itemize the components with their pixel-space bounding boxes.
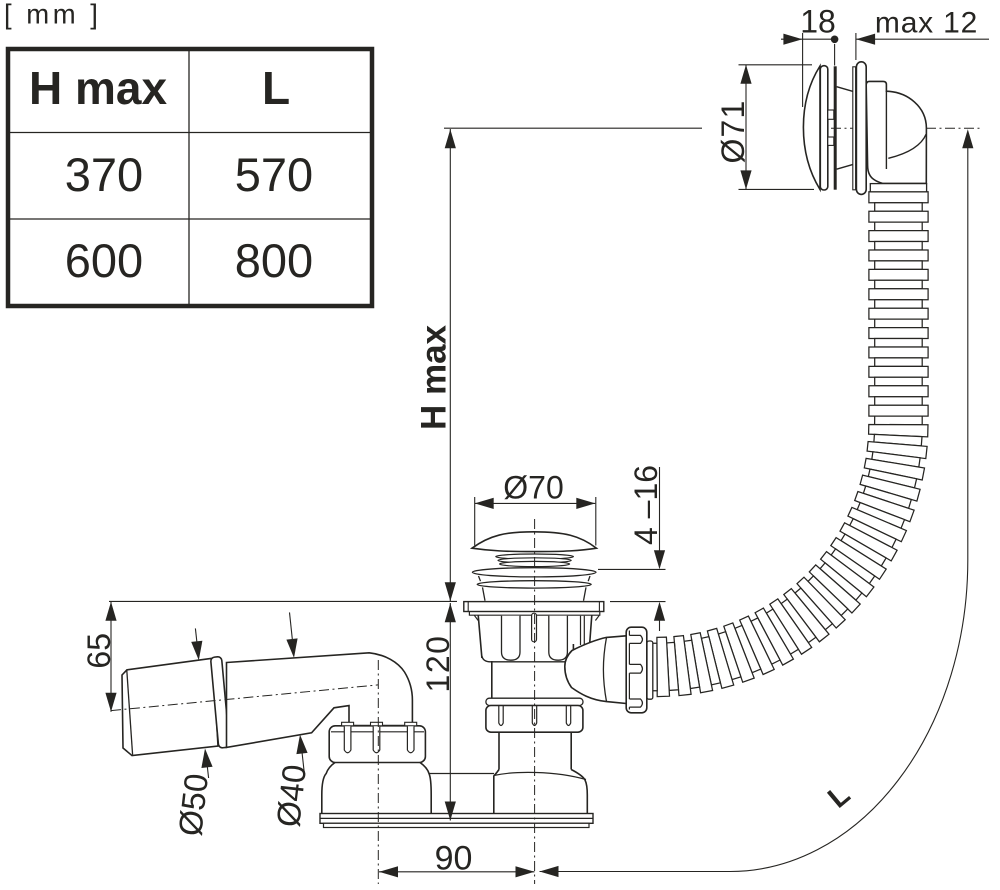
svg-text:800: 800	[235, 234, 313, 287]
svg-text:L: L	[822, 779, 856, 815]
svg-text:Ø50: Ø50	[171, 772, 215, 838]
svg-text:Ø71: Ø71	[715, 99, 751, 163]
svg-text:18: 18	[800, 4, 836, 40]
svg-text:Ø70: Ø70	[503, 470, 563, 506]
svg-text:120: 120	[420, 635, 456, 693]
svg-text:H max: H max	[415, 324, 454, 430]
svg-text:L: L	[262, 62, 290, 114]
svg-text:600: 600	[65, 234, 143, 287]
svg-text:[ mm ]: [ mm ]	[4, 0, 101, 30]
svg-text:570: 570	[235, 148, 313, 201]
svg-text:max 12: max 12	[875, 7, 978, 40]
svg-text:65: 65	[81, 633, 117, 669]
svg-text:90: 90	[435, 840, 473, 878]
svg-text:Ø40: Ø40	[269, 763, 313, 829]
svg-text:H max: H max	[29, 62, 167, 114]
svg-text:4 –16: 4 –16	[628, 465, 664, 545]
svg-text:370: 370	[65, 148, 143, 201]
